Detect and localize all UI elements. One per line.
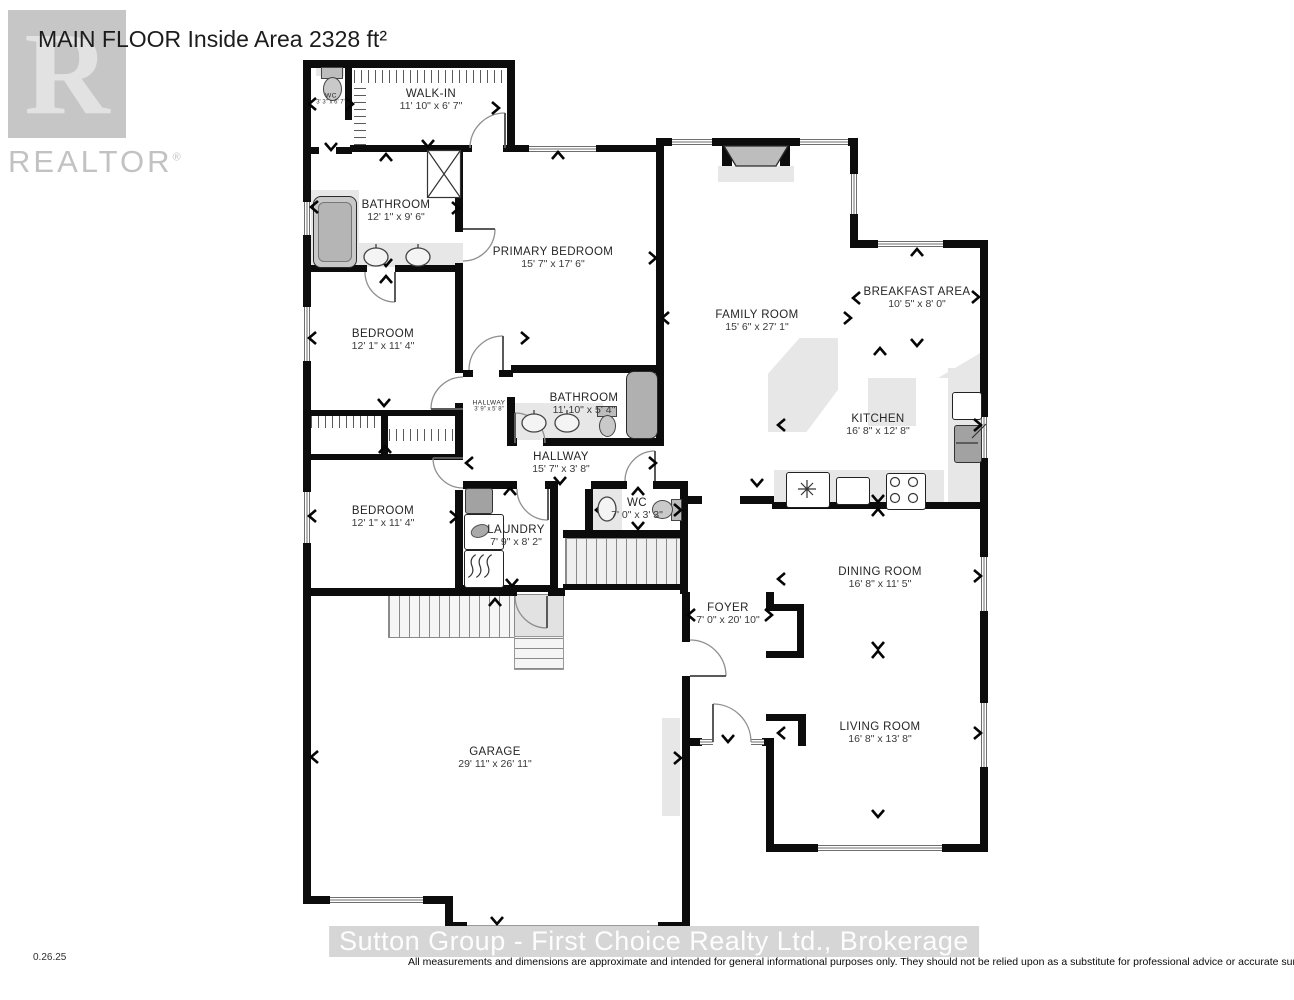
direction-arrow bbox=[422, 140, 434, 147]
kitchen-sink-divider bbox=[956, 424, 986, 443]
floorplan-canvas: R REALTOR® MAIN FLOOR Inside Area 2328 f… bbox=[0, 0, 1294, 1000]
direction-arrow bbox=[778, 573, 785, 585]
dryer-steam bbox=[466, 554, 478, 578]
room-label-bedroom-lower: BEDROOM 12' 1" x 11' 4" bbox=[352, 505, 415, 529]
direction-arrow bbox=[492, 102, 499, 114]
direction-arrow bbox=[872, 810, 884, 817]
cooktop-symbol bbox=[798, 480, 816, 498]
direction-arrow bbox=[722, 735, 734, 742]
direction-arrow bbox=[380, 154, 392, 161]
room-label-wc-main: WC 7' 0" x 3' 3" bbox=[611, 497, 663, 521]
room-label-dining-room: DINING ROOM 16' 8" x 11' 5" bbox=[838, 566, 922, 590]
door-arc bbox=[469, 336, 503, 370]
room-label-bedroom-upper: BEDROOM 12' 1" x 11' 4" bbox=[352, 328, 415, 352]
direction-arrow bbox=[632, 522, 644, 529]
door-arc bbox=[433, 458, 463, 488]
direction-arrow bbox=[674, 752, 681, 764]
door-arc bbox=[690, 640, 726, 676]
door-arc bbox=[515, 596, 547, 628]
direction-arrow bbox=[872, 642, 884, 649]
direction-arrow bbox=[552, 152, 564, 159]
direction-arrow bbox=[632, 488, 644, 495]
room-label-primary-bedroom: PRIMARY BEDROOM 15' 7" x 17' 6" bbox=[493, 246, 614, 270]
direction-arrow bbox=[765, 609, 772, 621]
direction-arrow bbox=[450, 511, 457, 523]
sink bbox=[555, 414, 579, 432]
door-arc bbox=[431, 377, 463, 409]
brokerage-watermark: Sutton Group - First Choice Realty Ltd.,… bbox=[329, 926, 979, 957]
direction-arrow bbox=[874, 348, 886, 355]
room-label-kitchen: KITCHEN 16' 8" x 12' 8" bbox=[846, 413, 909, 437]
sink bbox=[364, 248, 388, 266]
door-arc bbox=[365, 272, 395, 302]
stove-burner bbox=[891, 478, 900, 487]
direction-arrow bbox=[489, 599, 501, 606]
direction-arrow bbox=[378, 399, 390, 406]
direction-arrow bbox=[972, 291, 979, 303]
direction-arrow bbox=[311, 751, 318, 763]
direction-arrow bbox=[778, 419, 785, 431]
direction-arrow bbox=[778, 727, 785, 739]
direction-arrow bbox=[844, 312, 851, 324]
direction-arrow bbox=[872, 509, 884, 516]
room-label-hallway-small: HALLWAY 3' 9" x 5' 8" bbox=[473, 400, 506, 413]
room-label-hallway-main: HALLWAY 15' 7" x 3' 8" bbox=[532, 451, 590, 475]
dryer-steam bbox=[474, 554, 486, 578]
room-label-wc-upper: WC 3' 3" x 6' 7" bbox=[316, 93, 346, 106]
direction-arrow bbox=[751, 479, 763, 486]
room-label-living-room: LIVING ROOM 16' 8" x 13' 8" bbox=[839, 721, 920, 745]
stove-burner bbox=[891, 494, 900, 503]
direction-arrow bbox=[649, 252, 656, 264]
direction-arrow bbox=[911, 249, 923, 256]
direction-arrow bbox=[506, 579, 518, 586]
direction-arrow bbox=[504, 488, 516, 495]
direction-arrow bbox=[379, 446, 391, 453]
sink bbox=[522, 414, 546, 432]
direction-arrow bbox=[688, 609, 695, 621]
door-arc bbox=[517, 489, 548, 520]
direction-arrow bbox=[974, 727, 981, 739]
direction-arrow bbox=[346, 98, 353, 110]
dryer-steam bbox=[482, 554, 494, 578]
direction-arrow bbox=[309, 332, 316, 344]
direction-arrow bbox=[380, 276, 392, 283]
room-label-family-room: FAMILY ROOM 15' 6" x 27' 1" bbox=[715, 309, 798, 333]
plan-date: 0.26.25 bbox=[33, 952, 66, 963]
door-arc bbox=[625, 451, 655, 481]
direction-arrow bbox=[325, 143, 337, 150]
door-arc bbox=[463, 229, 495, 261]
direction-arrow bbox=[491, 917, 503, 924]
room-label-walk-in: WALK-IN 11' 10" x 6' 7" bbox=[400, 88, 463, 112]
direction-arrow bbox=[872, 495, 884, 502]
disclaimer-text: All measurements and dimensions are appr… bbox=[408, 956, 1268, 968]
direction-arrow bbox=[911, 339, 923, 346]
direction-arrow bbox=[466, 457, 473, 469]
direction-arrow bbox=[309, 510, 316, 522]
direction-arrow bbox=[309, 98, 316, 110]
stove-burner bbox=[909, 494, 918, 503]
room-label-bathroom-second: BATHROOM 11' 10" x 5' 4" bbox=[550, 392, 619, 416]
room-label-laundry: LAUNDRY 7' 9" x 8' 2" bbox=[487, 524, 545, 548]
direction-arrow bbox=[974, 570, 981, 582]
direction-arrow bbox=[452, 202, 459, 214]
direction-arrow bbox=[974, 419, 981, 431]
room-label-bathroom-main: BATHROOM 12' 1" x 9' 6" bbox=[362, 199, 431, 223]
room-label-breakfast-area: BREAKFAST AREA 10' 5" x 8' 0" bbox=[863, 286, 970, 310]
direction-arrow bbox=[662, 312, 669, 324]
fireplace bbox=[724, 146, 788, 166]
direction-arrow bbox=[521, 332, 528, 344]
direction-arrow bbox=[554, 477, 566, 484]
direction-arrow bbox=[853, 292, 860, 304]
stove-burner bbox=[909, 478, 918, 487]
direction-arrow bbox=[872, 651, 884, 658]
room-label-foyer: FOYER 7' 0" x 20' 10" bbox=[696, 602, 759, 626]
room-label-garage: GARAGE 29' 11" x 26' 11" bbox=[458, 746, 532, 770]
direction-arrow bbox=[311, 201, 318, 213]
door-arc bbox=[470, 113, 505, 148]
direction-arrow bbox=[674, 504, 681, 516]
sink bbox=[406, 248, 430, 266]
